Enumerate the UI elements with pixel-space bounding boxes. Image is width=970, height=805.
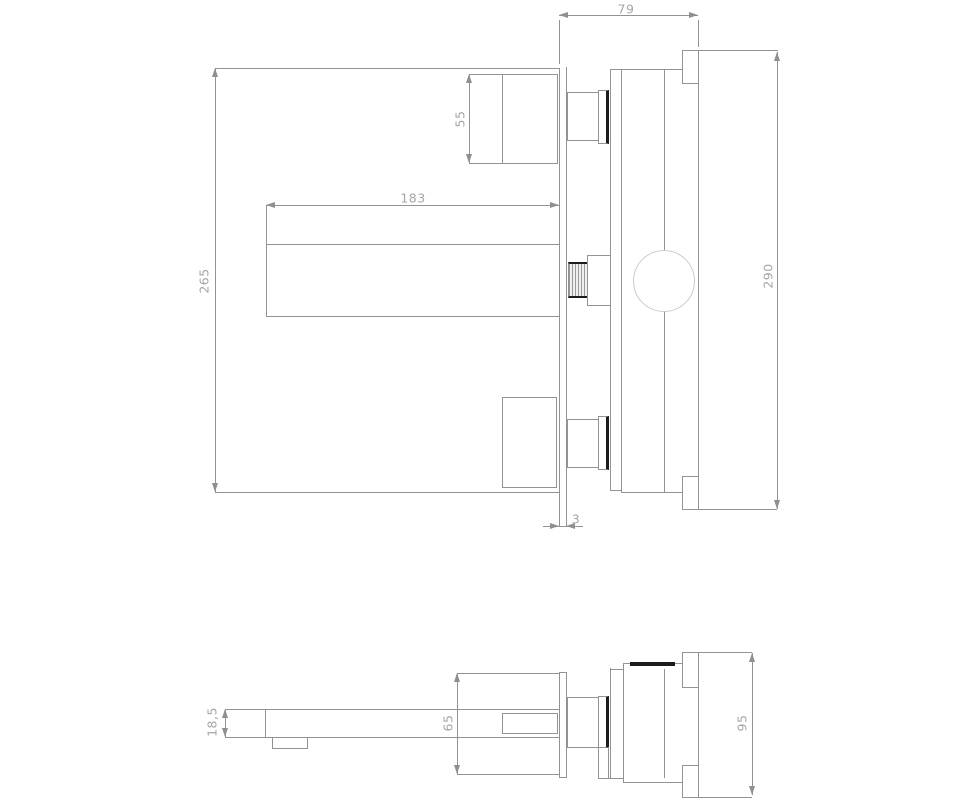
- dim-arrow: [689, 12, 698, 18]
- dim-arrow: [454, 673, 460, 682]
- body-left-edge: [610, 70, 611, 490]
- thread-connector: [568, 262, 588, 298]
- dim-arrow: [222, 709, 228, 718]
- body-right-edge: [698, 50, 699, 509]
- dim-18-5-label: 18,5: [205, 707, 220, 737]
- dim-arrow: [550, 202, 559, 208]
- mounting-tab-bottom: [682, 476, 698, 477]
- body-center-line-lower: [664, 311, 665, 492]
- dim-95-extension-bottom: [682, 797, 752, 798]
- spout-bottom-divider: [265, 709, 266, 737]
- dim-arrow: [550, 523, 559, 529]
- body-bottom-bottom-edge: [623, 782, 682, 783]
- dim-arrow: [749, 786, 755, 795]
- outlet-pipe-line: [598, 747, 599, 778]
- connector-housing: [587, 255, 611, 306]
- mounting-tab-top: [682, 50, 683, 83]
- body-bottom-left-edge: [610, 668, 611, 778]
- body-center-line-upper: [664, 69, 665, 250]
- dim-arrow: [466, 154, 472, 163]
- dim-183-label: 183: [400, 191, 425, 206]
- spout-front-inner-line: [266, 244, 559, 245]
- mounting-tab-top: [682, 83, 698, 84]
- body-bottom-inner-edge: [623, 663, 624, 782]
- dim-arrow: [466, 74, 472, 83]
- mounting-tab-bottom: [682, 476, 683, 509]
- wall-plate-bottom-strip: [559, 672, 567, 778]
- body-bottom-top-edge: [610, 669, 623, 670]
- dim-95-extension-top: [682, 652, 752, 653]
- dim-3-label: 3: [572, 512, 580, 527]
- lower-valve-flange: [598, 416, 609, 470]
- spout-notch: [272, 748, 308, 749]
- upper-valve-stem: [567, 92, 599, 141]
- dim-55-label: 55: [453, 111, 468, 128]
- dim-79-extension-right: [698, 20, 699, 47]
- dim-95-label: 95: [735, 715, 750, 732]
- upper-valve-flange: [598, 90, 609, 144]
- dim-290-label: 290: [761, 263, 776, 288]
- dim-290-extension-top: [682, 50, 778, 51]
- body-circle-detail: [633, 250, 695, 312]
- body-bottom-center-line: [664, 669, 665, 778]
- dim-265-label: 265: [197, 268, 212, 293]
- dim-65-label: 65: [441, 715, 456, 732]
- valve-trim-front-outline: [502, 397, 557, 488]
- dim-arrow: [212, 483, 218, 492]
- dim-290-extension-bottom: [682, 509, 777, 510]
- body-bottom-bottom-edge: [598, 778, 623, 779]
- spout-notch: [272, 737, 273, 748]
- plate-edge-extension-line: [559, 492, 560, 526]
- mounting-tab-top: [682, 652, 683, 687]
- dim-79-extension-left: [559, 20, 560, 64]
- spout-front-outline: [266, 205, 560, 317]
- dim-95-line: [752, 653, 753, 795]
- dim-arrow: [222, 728, 228, 737]
- mounting-tab-bottom: [682, 765, 683, 797]
- dim-arrow: [212, 68, 218, 77]
- valve-flange-bottom: [598, 696, 609, 748]
- mounting-tab-top: [682, 687, 698, 688]
- spout-notch: [307, 737, 308, 748]
- body-inner-edge: [621, 69, 622, 492]
- body-bottom-edge: [610, 490, 621, 491]
- mounting-tab-bottom: [682, 765, 698, 766]
- dim-arrow: [266, 202, 275, 208]
- dim-arrow: [454, 765, 460, 774]
- dim-290-line: [777, 52, 778, 509]
- dim-arrow: [749, 653, 755, 662]
- body-top-edge: [610, 69, 682, 70]
- valve-stem-bottom: [567, 697, 599, 748]
- lower-valve-stem: [567, 419, 599, 468]
- body-bottom-right-edge: [698, 652, 699, 797]
- outlet-pipe-line: [608, 747, 609, 778]
- dim-arrow: [774, 52, 780, 61]
- dim-79-label: 79: [618, 2, 635, 17]
- dim-arrow: [559, 12, 568, 18]
- body-seam: [630, 662, 675, 666]
- handle-front-divider: [502, 74, 503, 163]
- technical-drawing-canvas: 265 183 55 3: [0, 0, 970, 805]
- handle-front-outline: [469, 74, 558, 164]
- handle-bottom-lever: [502, 713, 558, 734]
- dim-arrow: [774, 500, 780, 509]
- body-bottom-edge: [621, 492, 682, 493]
